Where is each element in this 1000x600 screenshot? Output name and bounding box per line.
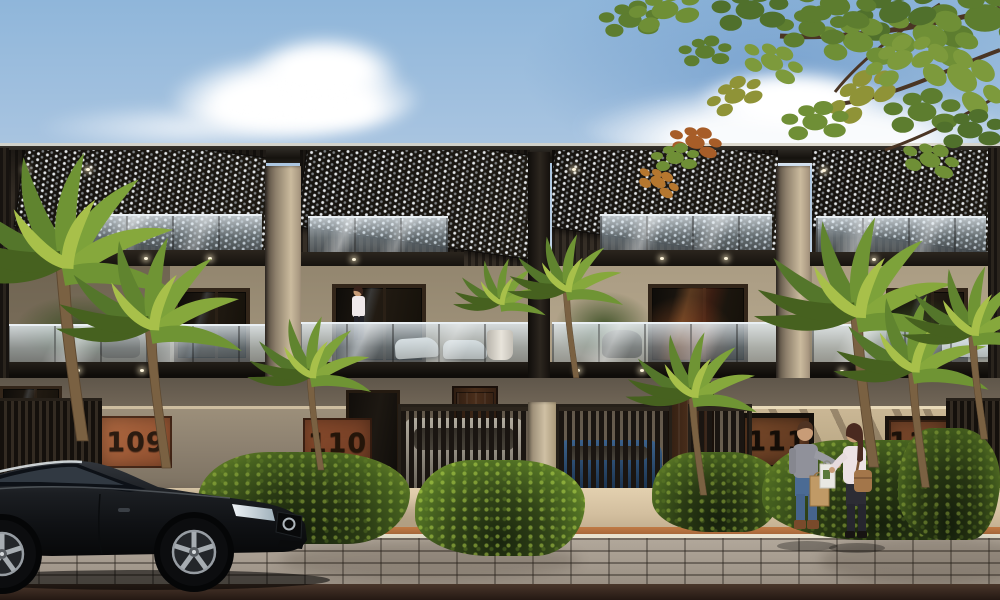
tree-canopy xyxy=(600,0,1000,200)
black-sedan xyxy=(0,432,340,592)
pedestrians xyxy=(762,412,897,557)
cloud xyxy=(250,35,400,105)
rooftop-glass-railing xyxy=(308,216,448,254)
hedge-shrubs xyxy=(415,460,585,556)
ceiling-light xyxy=(572,168,576,171)
soffit-light xyxy=(352,258,356,261)
palm-tree xyxy=(882,268,1000,437)
soffit-light xyxy=(660,257,664,260)
street-scene: 109 110 111 112 xyxy=(0,0,1000,600)
